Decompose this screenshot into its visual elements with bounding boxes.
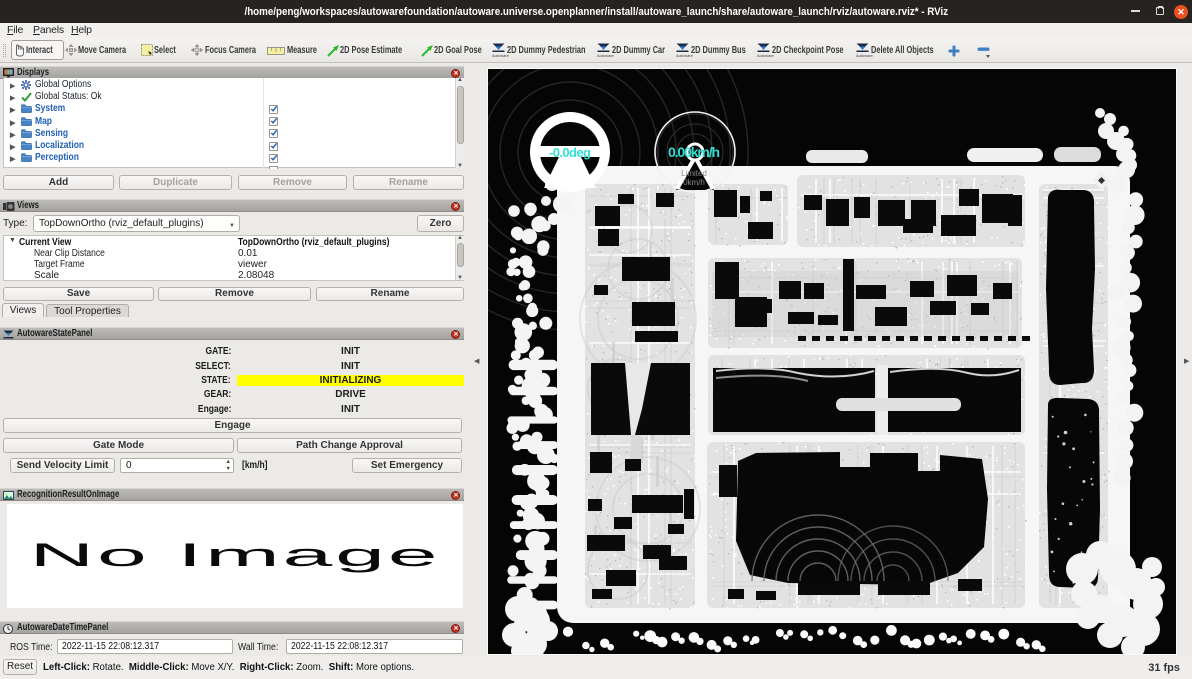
svg-text:0.00km/h: 0.00km/h	[668, 144, 720, 160]
svg-text:0km/h: 0km/h	[683, 178, 705, 187]
svg-text:-0.0deg: -0.0deg	[549, 145, 591, 160]
svg-text:Limited: Limited	[681, 169, 707, 178]
